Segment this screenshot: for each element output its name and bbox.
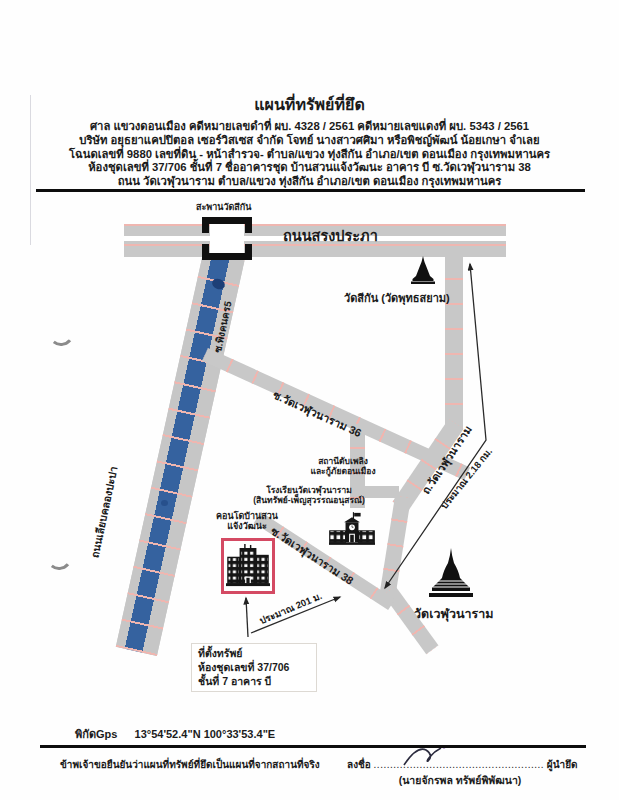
wat-sikan-label: วัดสีกัน (วัดพุทธสยาม): [344, 292, 450, 305]
road-songprapha-label: ถนนสรงประภา: [283, 228, 378, 245]
property-box-line2: ห้องชุดเลขที่ 37/706: [198, 660, 310, 674]
distance-201-m-label: ประมาณ 201 ม.: [258, 591, 324, 627]
header-line-address: ถนน วัดเวฬุวนาราม ตำบล/แขวง ทุ่งสีกัน อำ…: [0, 175, 619, 189]
road-wat-weluwanaram-vertical: [445, 255, 463, 430]
condo-label: คอนโดบ้านสวน แจ้งวัฒนะ: [216, 511, 278, 532]
page-title: แผนที่ทรัพย์ที่ยึด: [0, 92, 619, 117]
canal-marker-dot-mid: [161, 500, 168, 506]
property-highlight-box: [221, 538, 275, 594]
signer-name: (นายจักรพล ทรัพย์พิพัฒนา): [372, 772, 548, 789]
header-line-court: ศาล แขวงดอนเมือง คดีหมายเลขดำที่ ผบ. 432…: [0, 120, 619, 134]
gps-row: พิกัดGps 13°54'52.4"N 100°33'53.4"E: [75, 728, 275, 741]
wat-sikan-stupa-icon: [408, 256, 438, 286]
property-box-line1: ที่ตั้งทรัพย์: [198, 646, 310, 660]
footer-divider: [40, 745, 586, 748]
sign-role: ผู้นำยึด: [547, 759, 578, 770]
header-line-unit: ห้องชุดเลขที่ 37/706 ชั้นที่ 7 ชื่ออาคาร…: [0, 161, 619, 175]
wat-weluwanaram-stupa-icon: [424, 548, 478, 604]
gps-value: 13°54'52.4"N 100°33'53.4"E: [135, 728, 276, 740]
condo-building-icon: [226, 543, 270, 589]
fire-station-label: สถานีดับเพลิง และกู้ภัยดอนเมือง: [310, 457, 375, 477]
header-line-deed: โฉนดเลขที่ 9880 เลขที่ดิน - หน้าสำรวจ- ต…: [0, 148, 619, 162]
signature-dotted-line: ........................................…: [374, 759, 544, 770]
wat-weluwanaram-label: วัดเวฬุวนาราม: [414, 607, 494, 621]
signature-row: ลงชื่อ .................................…: [347, 757, 578, 772]
certify-text: ข้าพเจ้าขอยืนยันว่าแผนที่ทรัพย์ที่ยึดเป็…: [60, 757, 320, 772]
fire-station-line2: และกู้ภัยดอนเมือง: [310, 467, 375, 477]
property-location-box: ที่ตั้งทรัพย์ ห้องชุดเลขที่ 37/706 ชั้นท…: [191, 643, 317, 692]
header-divider: [36, 189, 585, 192]
road-wat-weluwanaram-lower: [380, 496, 411, 595]
map-area: สะพานวัดสีกัน ถนนสรงประภา ซ.พิงคนคร5 ถนน…: [0, 195, 619, 740]
condo-label-line1: คอนโดบ้านสวน: [216, 511, 278, 521]
school-label-line2: (สินทรัพย์-เพ็ญสุวรรณอนุสรณ์): [253, 496, 365, 506]
road-liab-khlong-label: ถนนเลียบคลองปะปา: [88, 465, 119, 559]
school-building-icon: [329, 512, 375, 554]
condo-label-line2: แจ้งวัฒนะ: [216, 521, 278, 531]
document-header: แผนที่ทรัพย์ที่ยึด ศาล แขวงดอนเมือง คดีห…: [0, 92, 619, 189]
school-label: โรงเรียนวัดเวฬุวนาราม (สินทรัพย์-เพ็ญสุว…: [253, 486, 365, 506]
header-line-parties: บริษัท อยุธยาแคปปิตอล เซอร์วิสเซส จำกัด …: [0, 134, 619, 148]
seized-property-map-page: แผนที่ทรัพย์ที่ยึด ศาล แขวงดอนเมือง คดีห…: [0, 0, 619, 800]
bridge-label: สะพานวัดสีกัน: [196, 202, 251, 212]
property-box-line3: ชั้นที่ 7 อาคาร บี: [198, 674, 310, 688]
gps-label: พิกัดGps: [75, 728, 117, 740]
sign-label: ลงชื่อ: [347, 759, 371, 770]
road-school-stub-horizontal: [363, 486, 399, 498]
